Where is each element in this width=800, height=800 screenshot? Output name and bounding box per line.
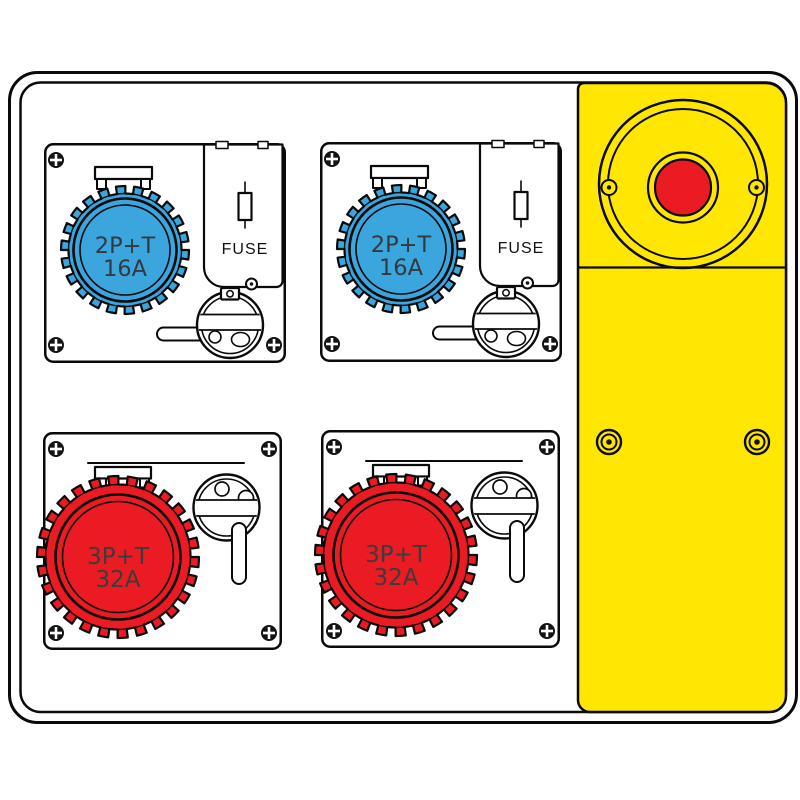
socket-module-16a-left	[45, 142, 285, 362]
quarter-turn-fastener-icon	[745, 430, 769, 454]
socket-module-32a-right	[315, 431, 559, 647]
socket-module-32a-left	[37, 433, 281, 649]
bezel-screw-icon	[602, 180, 617, 195]
quarter-turn-fastener-icon	[597, 430, 621, 454]
emergency-stop-button-icon	[655, 160, 711, 216]
drawing-canvas: FUSE 2P+T 16A	[0, 0, 800, 800]
socket-module-16a-right	[321, 141, 561, 361]
bezel-screw-icon	[749, 180, 764, 195]
distribution-board-drawing: FUSE 2P+T 16A	[0, 0, 800, 800]
emergency-stop-section	[578, 83, 786, 712]
